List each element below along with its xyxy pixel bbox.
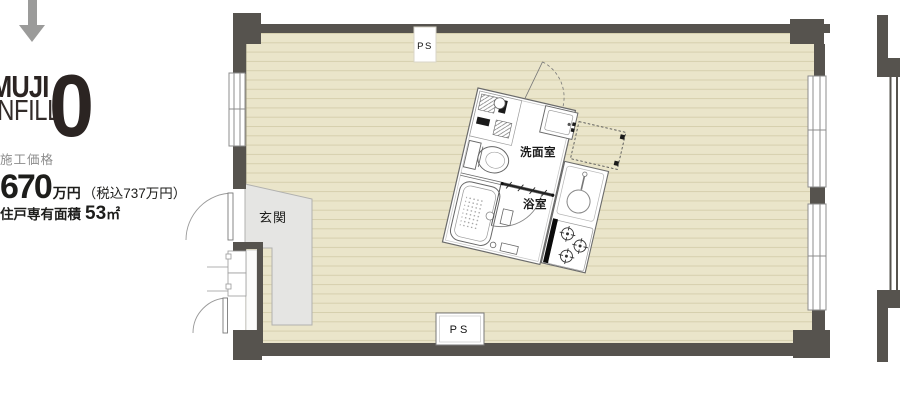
door-swing-arc	[186, 193, 233, 240]
neighbor-wall-bottom-stub	[888, 290, 900, 308]
wall-right-mid	[810, 187, 825, 205]
door-leaf	[228, 193, 233, 240]
laundry-hatch	[493, 120, 512, 138]
wall-left-3	[233, 242, 246, 251]
label-entrance: 玄関	[259, 210, 287, 225]
window-frame	[808, 204, 826, 310]
window-left	[229, 73, 245, 146]
wall-right-upper	[814, 44, 825, 77]
wall-corner-tr	[790, 19, 824, 44]
window-right-bottom	[808, 204, 826, 310]
neighbor-wall-bottom	[877, 290, 888, 362]
window-right-top	[808, 76, 826, 187]
neighbor-wall-top	[877, 15, 888, 77]
door-leaf	[223, 298, 228, 333]
label-bathroom: 浴室	[523, 197, 547, 211]
wall-top	[258, 24, 830, 33]
neighbor-wall-top-stub	[888, 58, 900, 77]
balcony-lines	[891, 77, 898, 290]
label-washroom: 洗面室	[520, 145, 556, 159]
entrance-door	[186, 193, 233, 240]
label-ps-bottom: PS	[450, 324, 471, 336]
wall-left-1	[233, 44, 246, 74]
floor-plan: PS PS 玄関 洗面室 浴室	[0, 0, 900, 400]
window-frame	[808, 76, 826, 187]
meter-box-latch	[226, 254, 231, 259]
wall-interior	[257, 242, 263, 346]
service-door	[193, 298, 228, 333]
label-ps-top: PS	[417, 41, 433, 52]
page: MUJI INFILL 0 施工価格 670 万円 （税込737万円） 住戸専有…	[0, 0, 900, 400]
wall-bottom	[258, 343, 830, 356]
closet-void	[246, 250, 257, 343]
wall-corner-tl	[233, 13, 261, 44]
meter-box	[207, 251, 246, 296]
wall-left-2	[233, 146, 246, 189]
meter-box-latch	[226, 284, 231, 289]
